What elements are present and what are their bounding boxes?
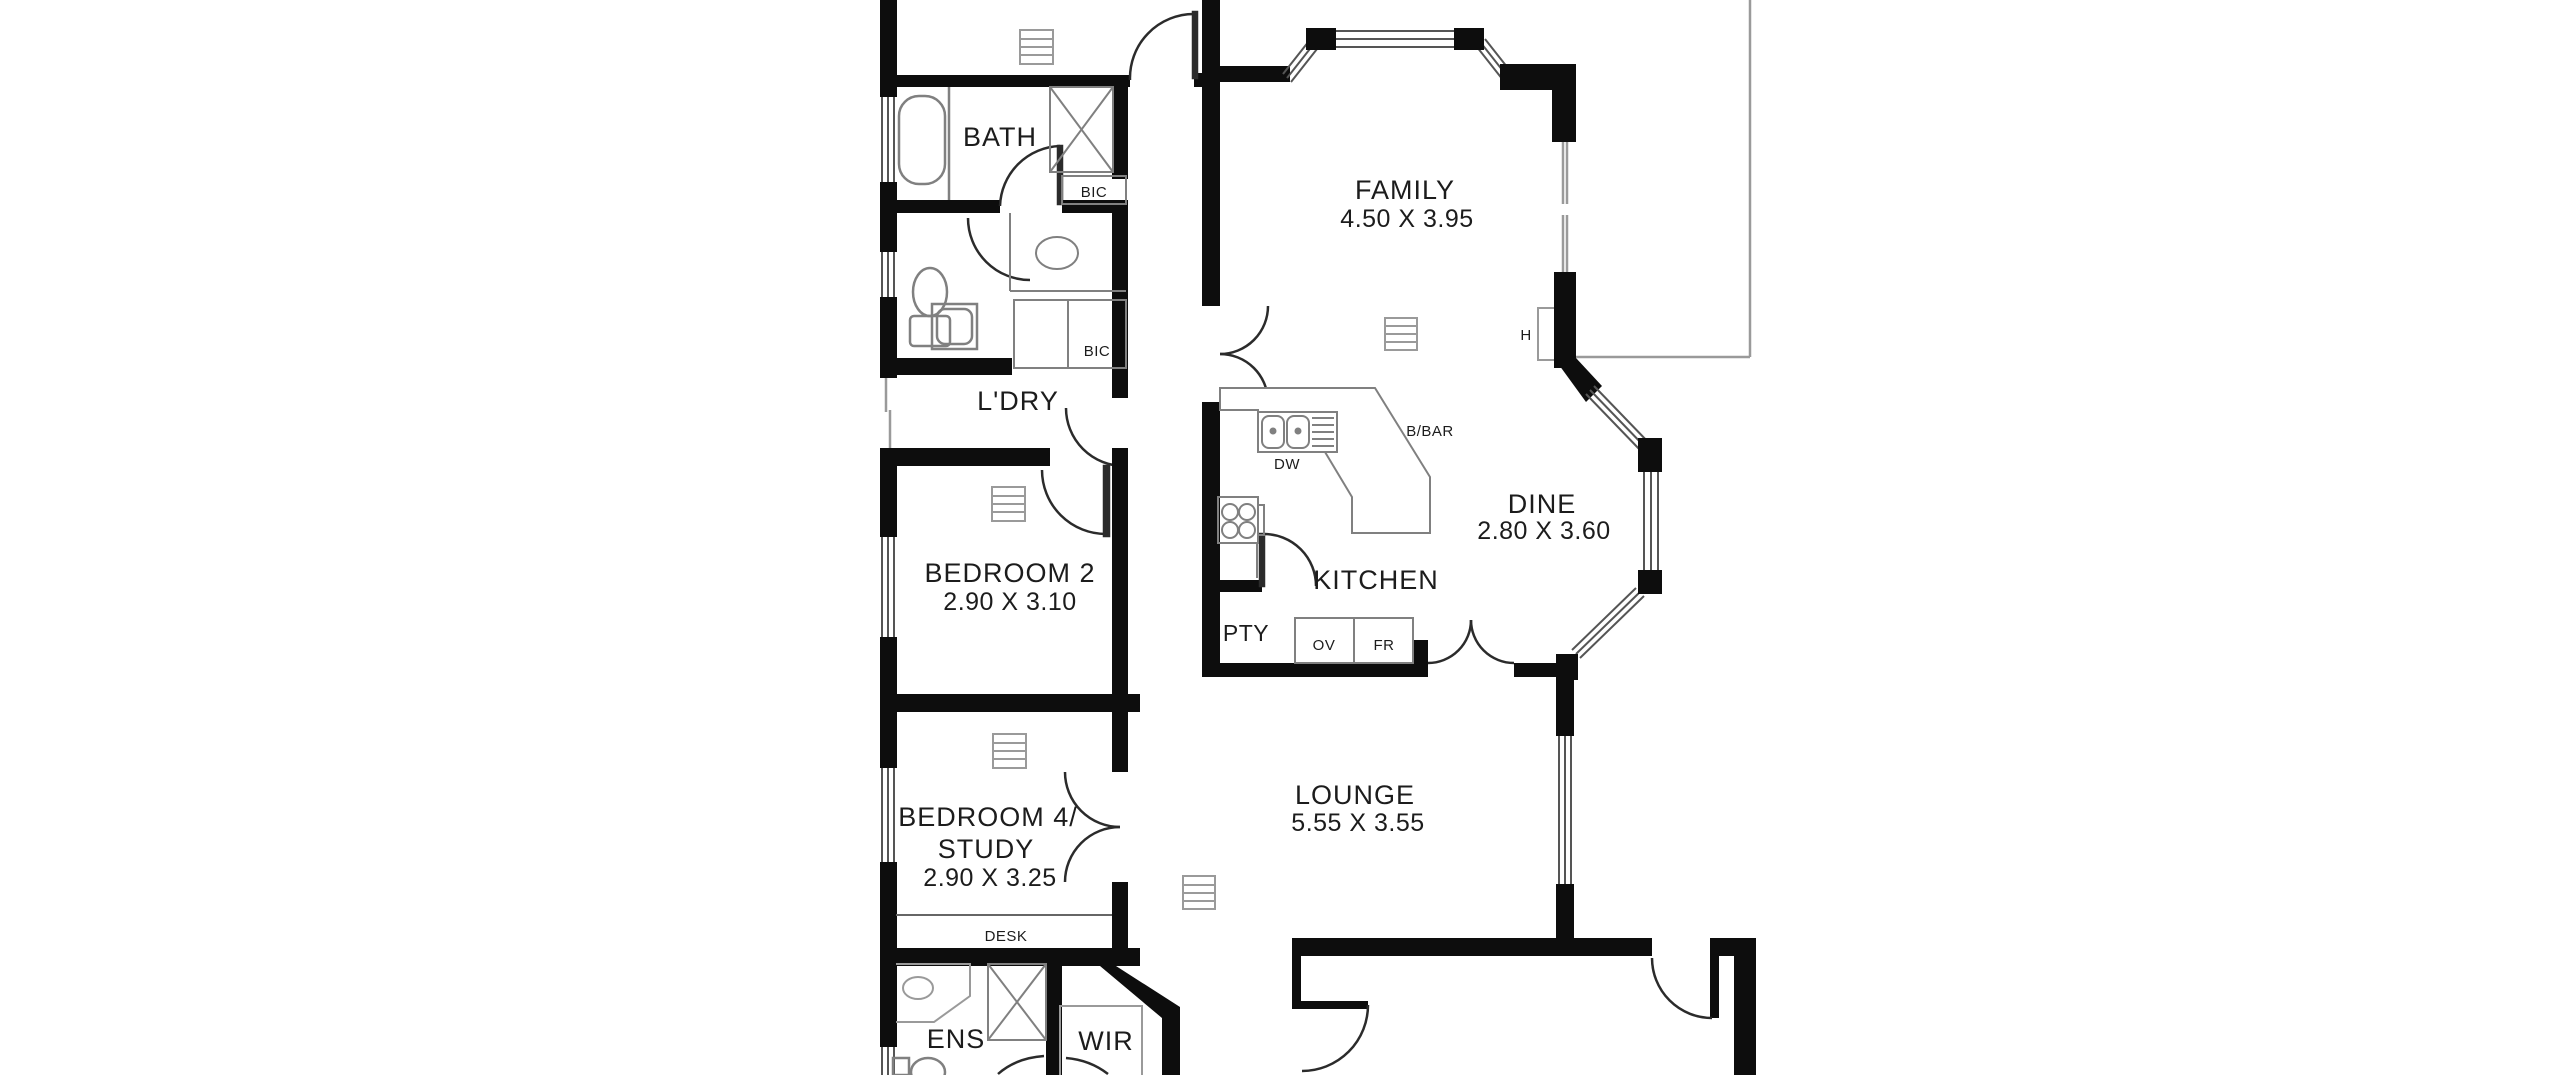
existing-structure-outline (1563, 0, 1750, 357)
cupboard-label-bic1: BIC (1081, 184, 1108, 201)
boundary-line (886, 378, 890, 448)
room-label-bath: BATH (963, 122, 1037, 152)
floor-plan: BATH BIC BIC L'DRY BEDROOM 2 2.90 X 3.10… (0, 0, 2560, 1075)
room-dims-family: 4.50 X 3.95 (1340, 205, 1473, 233)
shower-icon (1050, 87, 1113, 172)
ens-vanity-icon (896, 964, 970, 1022)
laundry-trough-icon (932, 304, 977, 349)
bathtub-icon (899, 87, 949, 200)
ens-shower-icon (988, 964, 1046, 1040)
bath-door-swing (1000, 146, 1062, 206)
room-label-family: FAMILY (1355, 175, 1455, 205)
room-label-bedroom4: BEDROOM 4/ (898, 802, 1078, 832)
kitchen-bench (1220, 388, 1430, 533)
porch-door-swing (1302, 1005, 1368, 1071)
bbar-label: B/BAR (1406, 423, 1454, 440)
wc-door-swing (968, 218, 1030, 280)
rear-door-swing (1652, 958, 1712, 1018)
room-label-bedroom2: BEDROOM 2 (924, 558, 1095, 588)
ens-toilet-icon (893, 1058, 945, 1075)
hot-water-label: H (1520, 327, 1531, 344)
room-label-kitchen: KITCHEN (1313, 565, 1439, 595)
family-bay-window (1283, 28, 1576, 142)
floorplan-page: BATH BIC BIC L'DRY BEDROOM 2 2.90 X 3.10… (0, 0, 2560, 1075)
room-dims-dine: 2.80 X 3.60 (1477, 517, 1610, 545)
room-dims-lounge: 5.55 X 3.55 (1291, 809, 1424, 837)
room-label-pantry: PTY (1223, 620, 1269, 646)
kitchen-french-door-swing (1428, 620, 1514, 663)
bedroom2-door-swing (1042, 466, 1109, 536)
room-label-lounge: LOUNGE (1295, 780, 1415, 810)
room-dims-bedroom2: 2.90 X 3.10 (943, 588, 1076, 616)
window (1559, 736, 1571, 884)
ens-door-swing (998, 1056, 1044, 1074)
room-label-ensuite: ENS (927, 1024, 986, 1054)
cooktop-icon (1218, 497, 1264, 578)
room-label-bedroom4-line2: STUDY (938, 834, 1035, 864)
pantry-door-swing (1260, 534, 1316, 586)
porch-step-walls (1292, 948, 1368, 1009)
desk-label: DESK (985, 928, 1028, 945)
room-label-dine: DINE (1508, 489, 1577, 519)
fr-label: FR (1374, 637, 1395, 654)
wc-walls (896, 358, 1012, 375)
room-label-laundry: L'DRY (977, 386, 1059, 416)
dw-label: DW (1274, 456, 1300, 473)
cupboard-label-bic2: BIC (1084, 343, 1111, 360)
room-dims-bedroom4: 2.90 X 3.25 (923, 864, 1056, 892)
entry-door-swing (1130, 12, 1197, 80)
dine-bay-window (1554, 272, 1662, 680)
room-label-wir: WIR (1078, 1026, 1133, 1056)
toilet-icon (910, 268, 950, 346)
wir-door-swing (1066, 1058, 1108, 1074)
ov-label: OV (1313, 637, 1336, 654)
